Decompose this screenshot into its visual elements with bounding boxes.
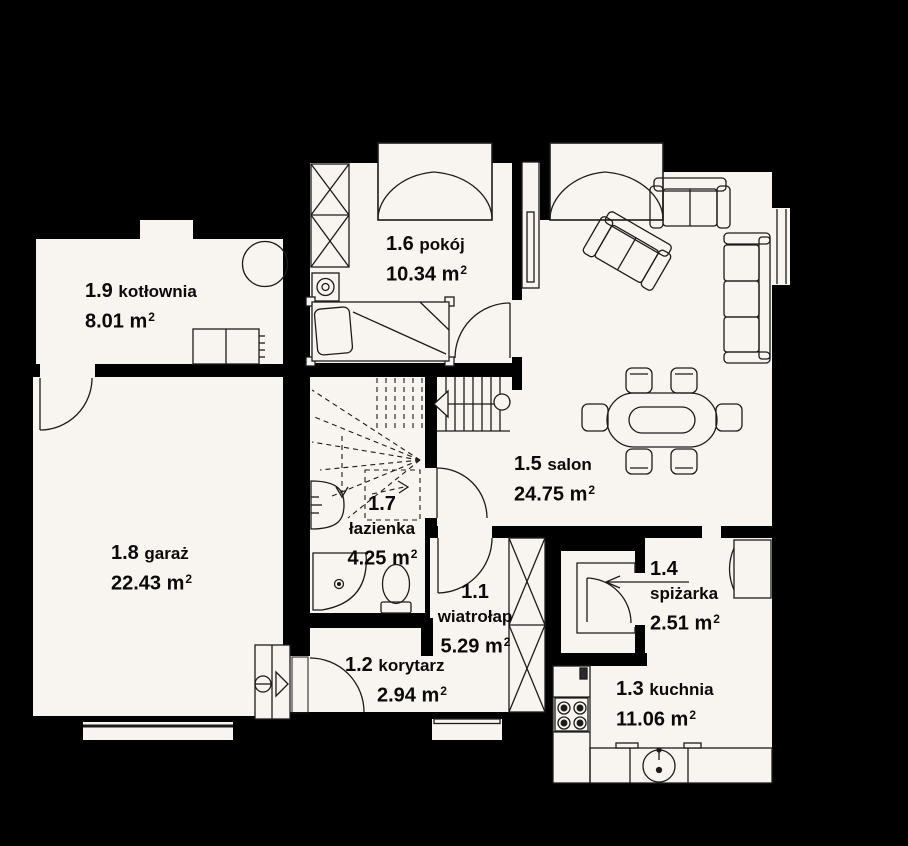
opening-spizarka <box>635 573 645 625</box>
opening-lazienka <box>425 468 437 518</box>
room-label-wiatrolap: 1.1 wiatrołap 5.29 m2 <box>430 580 520 659</box>
stair-hall-floor <box>437 377 522 526</box>
wall <box>425 518 437 538</box>
room-label-spizarka: 1.4 spiżarka 2.51 m2 <box>650 557 719 636</box>
room-label-korytarz: 1.2 korytarz 2.94 m2 <box>345 653 446 708</box>
wall <box>425 377 437 468</box>
wall <box>545 526 772 538</box>
room-label-pokoj: 1.6 pokój 10.34 m2 <box>386 232 466 287</box>
opening-kotlownia-garaz <box>40 364 95 378</box>
room-label-kuchnia: 1.3 kuchnia 11.06 m2 <box>616 677 714 732</box>
opening-wiatrolap <box>438 526 492 538</box>
room-label-kotlownia: 1.9 kotłownia 8.01 m2 <box>85 279 197 334</box>
chimney-bump <box>140 220 193 239</box>
east-window-opening <box>772 208 790 285</box>
opening-garaz-korytarz <box>283 656 310 712</box>
wall <box>549 538 645 551</box>
wall <box>545 538 561 666</box>
opening-salon-kuchnia <box>702 526 721 538</box>
room-label-garaz: 1.8 garaż 22.43 m2 <box>111 541 191 596</box>
room-label-lazienka: 1.7 łazienka 4.25 m2 <box>342 492 422 571</box>
wall <box>512 143 522 300</box>
wall <box>522 143 540 163</box>
room-label-salon: 1.5 salon 24.75 m2 <box>514 452 594 507</box>
entrance-niche <box>432 719 502 740</box>
wall <box>540 143 550 220</box>
pokoj-window-recess <box>378 143 492 220</box>
opening-pokoj <box>512 300 522 357</box>
floor-plan: 1.9 kotłownia 8.01 m2 1.6 pokój 10.34 m2… <box>0 0 908 846</box>
room-spizarka-floor <box>561 551 635 653</box>
garage-gate-recess <box>83 722 233 740</box>
wall <box>545 653 647 666</box>
wall <box>663 140 772 172</box>
wall <box>512 357 522 390</box>
